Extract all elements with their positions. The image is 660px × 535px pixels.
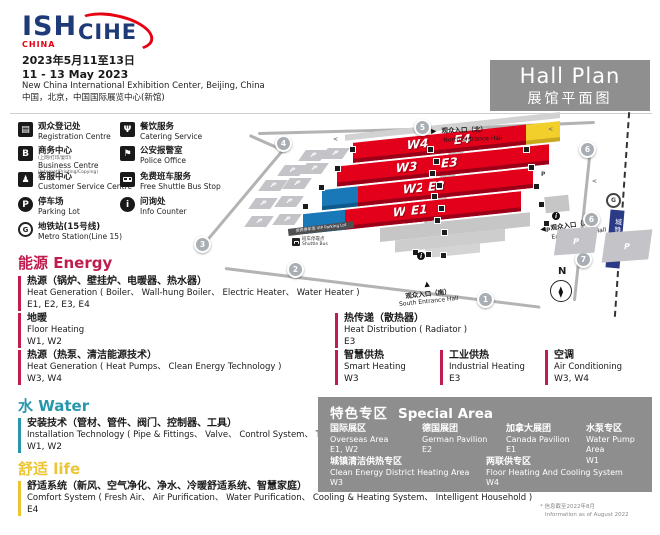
info-point-icon: i (552, 212, 560, 220)
north-entrance-label: ▶ 观众入口（北） North Entrance Hall (431, 116, 503, 144)
special-area-title: 特色专区Special Area (330, 402, 493, 422)
parking-lot: P (602, 229, 653, 262)
facility-icon (334, 165, 341, 172)
shuttle-stop-label: 班车停靠点Shuttle Bus (292, 237, 328, 247)
facility-icon (302, 203, 309, 210)
energy-item-smart-heating: 智慧供热Smart HeatingW3 (335, 350, 406, 385)
energy-item-heat-distribution: 热传递（散热器）Heat Distribution ( Radiator )E3 (335, 313, 467, 348)
road-direction-arrow-icon: < (592, 178, 597, 185)
hall-W2-annex (322, 186, 358, 210)
road-marker-3: 3 (194, 236, 211, 253)
parking-lot: P (248, 198, 278, 209)
facility-icon (441, 229, 448, 236)
facility-icon (431, 193, 438, 200)
facility-icon (433, 158, 440, 165)
parking-letter: P (546, 227, 550, 234)
compass-n-label: N (558, 266, 566, 277)
energy-item-heat-pumps: 热源（热泵、清洁能源技术）Heat Generation ( Heat Pump… (18, 350, 281, 385)
road-marker-6b: 6 (583, 211, 600, 228)
energy-item-air-conditioning: 空调Air ConditioningW3, W4 (545, 350, 622, 385)
info-point-icon: i (417, 252, 425, 260)
special-area-german: 德国展团German PavilionE2 (422, 424, 487, 456)
facility-icon (429, 170, 436, 177)
water-item-installation-technology: 安装技术（管材、管件、阀门、控制器、工具）Installation Techno… (18, 418, 343, 453)
road-marker-5: 5 (414, 119, 431, 136)
facility-icon (440, 252, 447, 259)
parking-lot: P (554, 227, 598, 256)
special-area-two-pipe: 两联供专区Floor Heating And Cooling SystemW4 (486, 457, 623, 489)
compass-icon: ◆ (550, 280, 572, 302)
shuttle-stop-icon (292, 238, 300, 246)
facility-icon (427, 146, 434, 153)
road-marker-6a: 6 (579, 141, 596, 158)
special-area-clean-energy: 城镇清洁供热专区Clean Energy District Heating Ar… (330, 457, 469, 489)
hall-E4-annex (526, 121, 560, 145)
footnote: * 信息截至2022年8月 Information as of August 2… (540, 504, 629, 519)
facility-icon (425, 251, 432, 258)
road-west (204, 148, 285, 243)
special-area-canada: 加拿大展团Canada PavilionE1 (506, 424, 570, 456)
section-energy-heading: 能源 Energy (18, 252, 112, 273)
facility-icon (538, 201, 545, 208)
hall-plan-page: ISH CHINA CIHE 2023年5月11至13日 11 - 13 May… (0, 0, 660, 535)
facility-icon (318, 184, 325, 191)
facility-icon (436, 182, 443, 189)
road-direction-arrow-icon: < (333, 136, 338, 143)
south-entrance-label: ▲ 观众入口（南） South Entrance Hall (397, 277, 459, 308)
facility-icon (438, 205, 445, 212)
energy-item-floor-heating: 地暖Floor HeatingW1, W2 (18, 313, 84, 348)
road-direction-arrow-icon: < (548, 126, 553, 133)
section-life-heading: 舒适 life (18, 458, 80, 479)
energy-item-industrial-heating: 工业供热Industrial HeatingE3 (440, 350, 525, 385)
north-entrance-arrow-icon: ▶ (431, 127, 437, 135)
energy-item-heat-generation-boiler: 热源（锅炉、壁挂炉、电暖器、热水器）Heat Generation ( Boil… (18, 276, 360, 311)
road-marker-4: 4 (275, 135, 292, 152)
metro-station-icon: G (606, 193, 621, 208)
east-annex-building (544, 195, 570, 213)
road-marker-1: 1 (477, 291, 494, 308)
section-water-heading: 水 Water (18, 395, 89, 416)
special-area-box: 特色专区Special Area 国际展区Overseas AreaE1, W2… (318, 397, 652, 492)
parking-letter: P (541, 171, 545, 178)
special-area-overseas: 国际展区Overseas AreaE1, W2 (330, 424, 388, 456)
facility-icon (533, 183, 540, 190)
facility-icon (528, 164, 535, 171)
facility-icon (434, 217, 441, 224)
parking-lot: P (244, 216, 274, 227)
facility-icon (523, 146, 530, 153)
facility-icon (543, 220, 550, 227)
